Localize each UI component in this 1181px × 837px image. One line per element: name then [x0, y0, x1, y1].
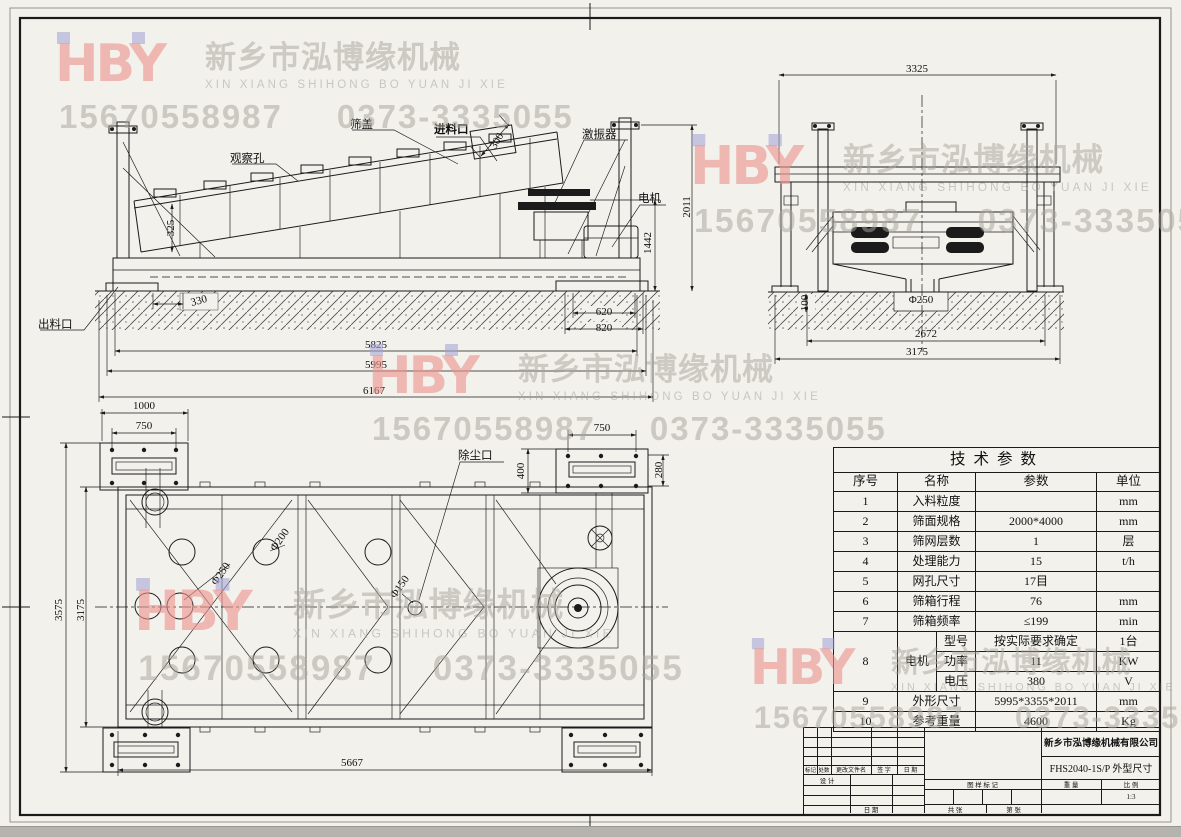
tb-drawing-title: FHS2040-1S/P 外型尺寸: [1041, 756, 1161, 779]
side-view: [40, 115, 697, 402]
title-block: 标记 处数 更改文件名 签 字 日 期 设 计 日 期 图 样 标 记 重 量 …: [803, 727, 1160, 815]
table-row: 4处理能力15t/h: [834, 552, 1161, 572]
tb-label-mark: 标记: [804, 765, 817, 774]
table-row: 2筛面规格2000*4000mm: [834, 512, 1161, 532]
tb-company: 新乡市泓博缘机械有限公司: [1041, 728, 1161, 756]
table-title: 技术参数: [834, 448, 1161, 473]
tb-sheets-total: 共 张: [924, 804, 986, 813]
table-row: 5网孔尺寸17目: [834, 572, 1161, 592]
tb-label-date: 日 期: [897, 765, 924, 774]
col-header-unit: 单位: [1097, 473, 1161, 492]
tb-label-weight: 重 量: [1041, 779, 1101, 789]
tb-scale-value: 1:3: [1101, 789, 1161, 804]
tb-label-design: 设 计: [804, 774, 850, 785]
table-row: 6筛箱行程76mm: [834, 592, 1161, 612]
tb-label-signature: 签 字: [871, 765, 897, 774]
col-header-name: 名称: [898, 473, 976, 492]
table-row-motor: 8 电机 型号 按实际要求确定 1台: [834, 632, 1161, 652]
table-row: 7筛箱频率≤199min: [834, 612, 1161, 632]
plan-view: [60, 409, 669, 776]
scan-edge-band: [0, 826, 1181, 837]
tb-sheet-no: 第 张: [986, 804, 1041, 813]
tb-label-drawing-mark: 图 样 标 记: [924, 779, 1041, 789]
drawing-sheet: 筛盖 观察孔 进料口 激振器 电机 出料口 除尘口 300 325 330 62…: [0, 0, 1181, 836]
col-header-no: 序号: [834, 473, 898, 492]
col-header-value: 参数: [976, 473, 1097, 492]
tb-label-scale: 比 例: [1101, 779, 1161, 789]
tb-label-count: 处数: [817, 765, 831, 774]
end-view: [768, 75, 1064, 364]
table-row: 9外形尺寸5995*3355*2011mm: [834, 692, 1161, 712]
table-row: 1入料粒度mm: [834, 492, 1161, 512]
tb-label-change-file: 更改文件名: [831, 765, 871, 774]
tb-label-date2: 日 期: [850, 805, 892, 813]
tech-parameter-table: 技术参数 序号 名称 参数 单位 1入料粒度mm 2筛面规格2000*4000m…: [833, 447, 1161, 732]
table-row: 3筛网层数1层: [834, 532, 1161, 552]
